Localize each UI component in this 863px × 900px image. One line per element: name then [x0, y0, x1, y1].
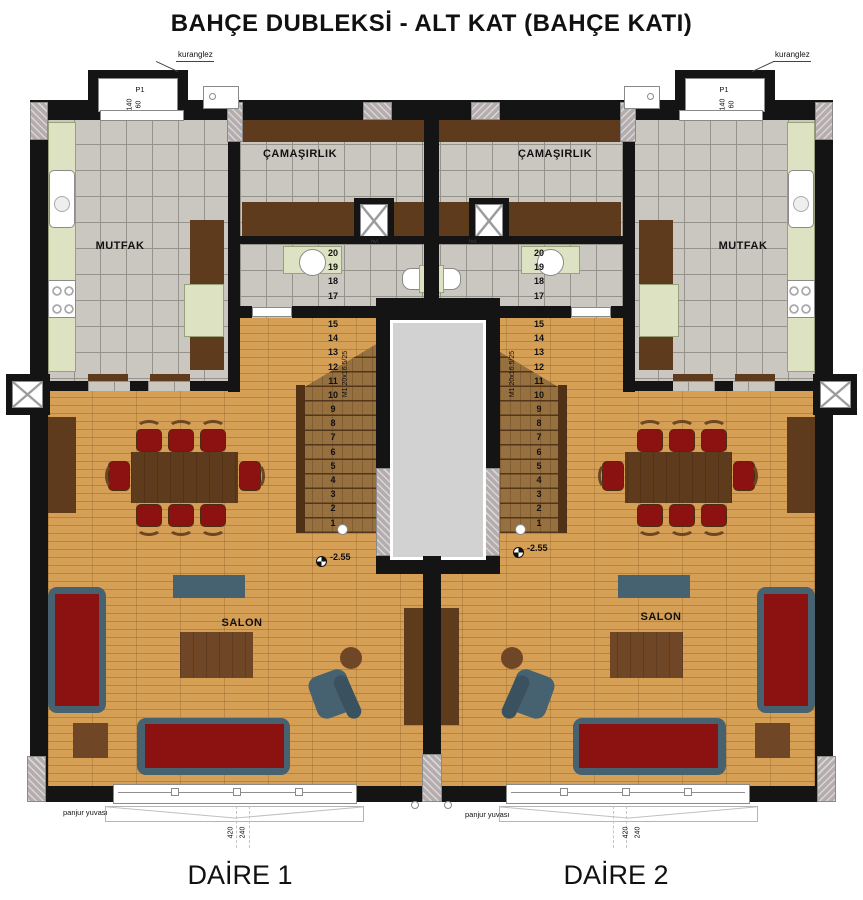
- door-threshold: [571, 307, 611, 317]
- pier: [484, 468, 500, 556]
- round-table: [501, 647, 523, 669]
- kitchen-counter: [48, 122, 76, 372]
- door-opening: [673, 381, 715, 391]
- sofa-cushion: [55, 594, 99, 706]
- dining-chair: [701, 429, 727, 452]
- column-marker: [209, 93, 216, 100]
- stair-step-number: 4: [524, 473, 554, 487]
- kitchen-bottom-wall: [40, 381, 238, 391]
- opening-dim: 420: [228, 821, 237, 845]
- stair-step-number: 1: [524, 516, 554, 530]
- pier: [815, 102, 833, 140]
- tall-cabinet: [48, 417, 76, 513]
- stair-step-number: 2: [524, 501, 554, 515]
- laundry-counter: [242, 120, 424, 142]
- stair-step-number: 8: [524, 416, 554, 430]
- door-opening: [148, 381, 190, 391]
- sideboard: [173, 575, 245, 598]
- stair-stringer: [558, 385, 567, 533]
- room-label-kitchen: MUTFAK: [713, 240, 773, 252]
- stair-step-number: 14: [524, 331, 554, 345]
- stair-step-number: 16: [318, 303, 348, 317]
- kuranglez-label: kuranglez: [775, 50, 810, 59]
- room-label-living: SALON: [631, 611, 691, 623]
- dining-table: [625, 452, 732, 503]
- wall-cabinet: [439, 608, 459, 725]
- bottom-wall: [431, 786, 506, 802]
- side-table: [755, 723, 790, 758]
- stove: [48, 280, 76, 318]
- sofa-cushion: [579, 724, 718, 768]
- stove: [787, 280, 815, 318]
- shutter-label: panjur yuvası: [63, 808, 108, 817]
- stair-step-number: 17: [524, 289, 554, 303]
- pier: [30, 102, 48, 140]
- shower: [475, 204, 503, 238]
- stair-step-number: 2: [318, 501, 348, 515]
- stair-step-number: 1: [318, 516, 348, 530]
- laundry-cabinet: [439, 202, 471, 236]
- plan-title: BAHÇE DUBLEKSİ - ALT KAT (BAHÇE KATI): [0, 10, 863, 38]
- room-label-kitchen: MUTFAK: [90, 240, 150, 252]
- stair-step-number: 16: [524, 303, 554, 317]
- bottom-wall: [357, 786, 432, 802]
- sofa-cushion: [145, 724, 284, 768]
- dining-chair: [200, 429, 226, 452]
- side-wall: [30, 100, 48, 792]
- level-marker-icon: [316, 556, 327, 567]
- window-handle: [233, 788, 241, 796]
- party-wall: [431, 100, 439, 318]
- pier: [363, 102, 392, 120]
- door-leaf: [88, 374, 128, 381]
- dim-guide: [249, 806, 250, 848]
- opening-dim: 240: [635, 821, 644, 845]
- stair-step-number: 15: [524, 317, 554, 331]
- stair-step-number: 11: [524, 374, 554, 388]
- dining-table: [131, 452, 238, 503]
- wc-tag: hvl.: [371, 239, 380, 245]
- kitchen-wall: [228, 118, 240, 392]
- laundry-counter: [439, 120, 621, 142]
- window-dim: 140: [127, 93, 136, 117]
- apartment-label-1: DAİRE 1: [140, 860, 340, 891]
- laundry-cabinet: [242, 202, 360, 236]
- tall-cabinet: [787, 417, 815, 513]
- window-handle: [622, 788, 630, 796]
- kuranglez-label: kuranglez: [178, 50, 213, 59]
- stair-stringer: [296, 385, 305, 533]
- laundry-bath-wall: [439, 236, 625, 244]
- laundry-cabinet: [503, 202, 621, 236]
- bath-bottom-wall: [611, 306, 625, 318]
- kitchen-island: [184, 284, 224, 337]
- window-handle: [295, 788, 303, 796]
- column-marker: [444, 801, 452, 809]
- stair-step-number: 5: [318, 459, 348, 473]
- round-table: [340, 647, 362, 669]
- window-handle: [171, 788, 179, 796]
- stair-step-number: 3: [524, 487, 554, 501]
- bath-bottom-wall: [238, 306, 252, 318]
- window-dim: 140: [720, 93, 729, 117]
- stair-step-number: 5: [524, 459, 554, 473]
- dining-chair: [637, 429, 663, 452]
- wall-cabinet: [404, 608, 424, 725]
- stair-step-number: 20: [318, 246, 348, 260]
- leader-line: [773, 61, 811, 62]
- leader-line: [176, 61, 214, 62]
- stair-step-numbers: 2019181716151413121110987654321: [524, 246, 554, 530]
- window-handle: [684, 788, 692, 796]
- column-box: [624, 86, 660, 109]
- floor-plan: BAHÇE DUBLEKSİ - ALT KAT (BAHÇE KATI) ku…: [0, 0, 863, 900]
- dining-chair: [168, 504, 194, 527]
- door-threshold: [252, 307, 292, 317]
- sofa-cushion: [764, 594, 808, 706]
- light-well: [390, 320, 486, 560]
- stair-tag: M1 20x16.5/25: [342, 324, 354, 424]
- dining-chair: [136, 429, 162, 452]
- stair-step-number: 19: [524, 260, 554, 274]
- stair-step-number: 13: [524, 345, 554, 359]
- pier: [422, 754, 442, 802]
- opening-dim: 240: [240, 821, 249, 845]
- column-marker: [647, 93, 654, 100]
- stair-step-number: 4: [318, 473, 348, 487]
- column-marker: [411, 801, 419, 809]
- room-label-laundry: ÇAMAŞIRLIK: [510, 148, 600, 160]
- stair-step-number: 18: [318, 274, 348, 288]
- sideboard: [618, 575, 690, 598]
- dim-guide: [613, 806, 614, 848]
- window-dim: 60: [136, 93, 145, 117]
- room-label-laundry: ÇAMAŞIRLIK: [255, 148, 345, 160]
- stair-step-number: 7: [524, 430, 554, 444]
- window-handle: [560, 788, 568, 796]
- level-value: -2.55: [527, 543, 548, 553]
- kitchen-island: [639, 284, 679, 337]
- stair-tag: M1 20x16.5/25: [509, 324, 521, 424]
- pier: [27, 756, 46, 802]
- stair-step-number: 18: [524, 274, 554, 288]
- pier: [817, 756, 836, 802]
- daire-1-plan: [0, 0, 432, 900]
- door-opening: [733, 381, 775, 391]
- dining-chair: [168, 429, 194, 452]
- coffee-table: [180, 632, 253, 678]
- shower: [360, 204, 388, 238]
- stair-step-number: 6: [524, 445, 554, 459]
- kitchen-bottom-wall: [625, 381, 823, 391]
- stair-step-number: 3: [318, 487, 348, 501]
- laundry-cabinet: [392, 202, 424, 236]
- room-label-living: SALON: [212, 617, 272, 629]
- sink-basin: [793, 196, 809, 212]
- laundry-bath-wall: [238, 236, 424, 244]
- door-leaf: [150, 374, 190, 381]
- coffee-table: [610, 632, 683, 678]
- dining-chair: [701, 504, 727, 527]
- kitchen-counter: [787, 122, 815, 372]
- shutter-label: panjur yuvası: [465, 810, 510, 819]
- sink-basin: [54, 196, 70, 212]
- dining-chair: [669, 504, 695, 527]
- shaft-symbol: [12, 381, 43, 408]
- stair-step-number: 9: [524, 402, 554, 416]
- door-leaf: [735, 374, 775, 381]
- side-table: [73, 723, 108, 758]
- apartment-label-2: DAİRE 2: [516, 860, 716, 891]
- shaft-symbol: [820, 381, 851, 408]
- wc-tag: hvl.: [469, 239, 478, 245]
- window-dim: 60: [729, 93, 738, 117]
- stair-step-number: 7: [318, 430, 348, 444]
- stair-step-number: 19: [318, 260, 348, 274]
- door-leaf: [673, 374, 713, 381]
- side-wall: [815, 100, 833, 792]
- dining-chair: [200, 504, 226, 527]
- stair-step-number: 10: [524, 388, 554, 402]
- pier: [471, 102, 500, 120]
- dining-chair: [669, 429, 695, 452]
- stair-step-number: 17: [318, 289, 348, 303]
- stair-step-number: 12: [524, 360, 554, 374]
- door-opening: [88, 381, 130, 391]
- dining-chair: [136, 504, 162, 527]
- level-value: -2.55: [330, 552, 351, 562]
- dining-chair: [637, 504, 663, 527]
- opening-dim: 420: [623, 821, 632, 845]
- stair-step-number: 20: [524, 246, 554, 260]
- kitchen-wall: [623, 118, 635, 392]
- level-marker-icon: [513, 547, 524, 558]
- stair-step-number: 6: [318, 445, 348, 459]
